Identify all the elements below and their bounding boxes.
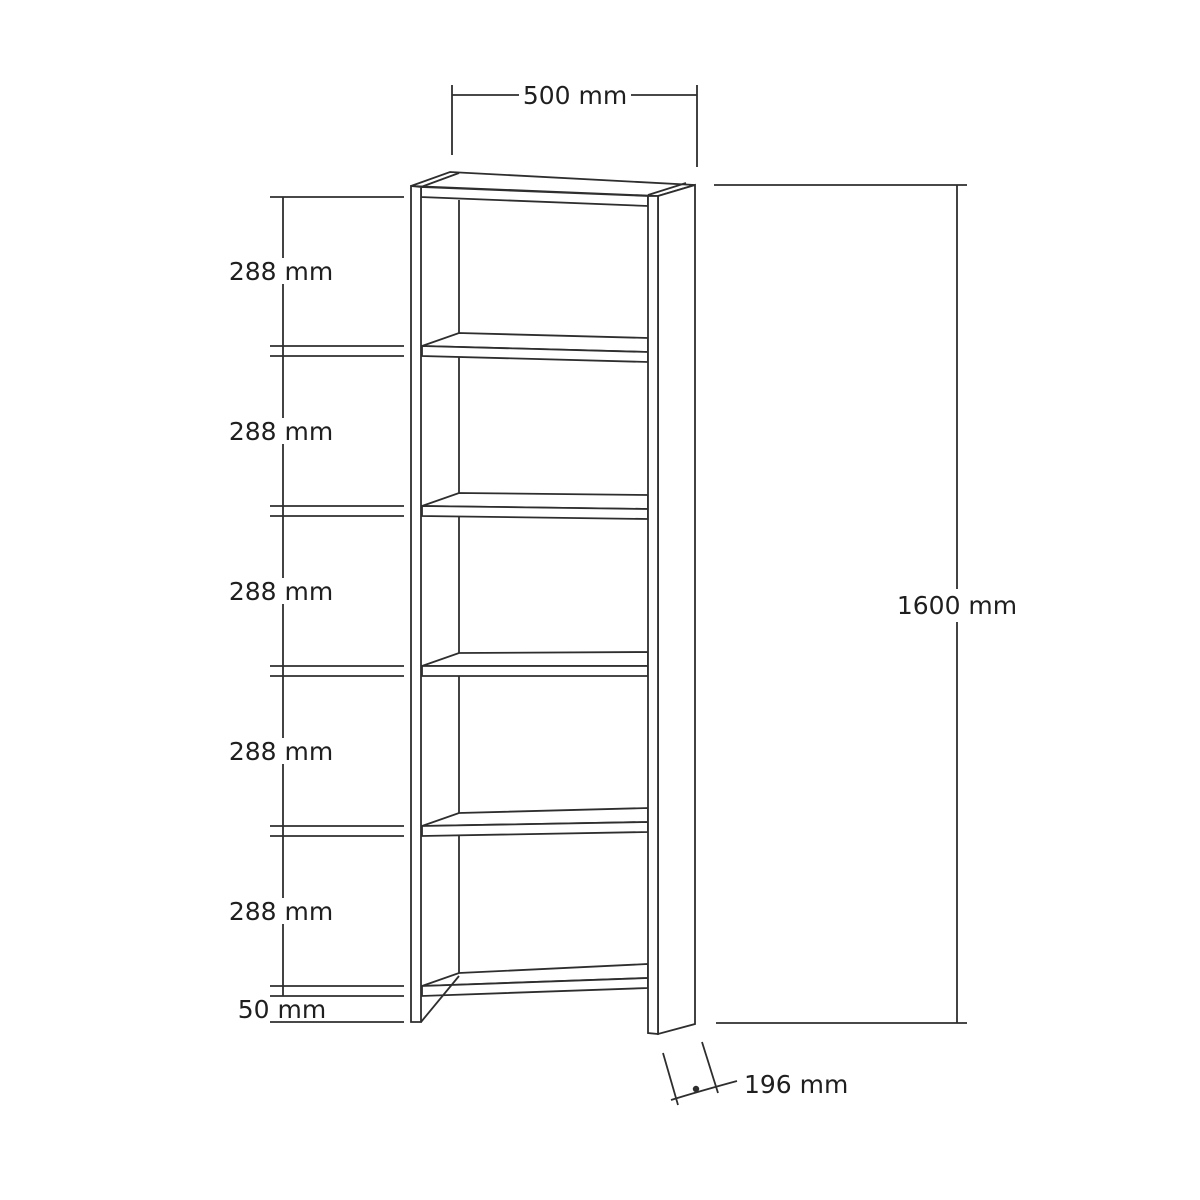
shelf-2-front-face (422, 506, 648, 519)
bookshelf-drawing (411, 172, 695, 1034)
bottom-clearance-label: 50 mm (238, 995, 326, 1024)
dimension-leader-line (671, 1081, 737, 1100)
width-dimension-label: 500 mm (523, 81, 627, 110)
dimension-dot-marker (693, 1086, 699, 1092)
extension-line (663, 1053, 678, 1105)
right-panel-outer-side-face (658, 185, 695, 1034)
dimension-left-chain: 288 mm 288 mm 288 mm 288 mm 288 mm 50 mm (229, 197, 404, 1024)
dimension-width: 500 mm (452, 81, 697, 167)
bookshelf-dimension-drawing: 500 mm 288 mm 288 mm 288 mm 288 mm 288 m… (0, 0, 1200, 1200)
shelf-spacing-label-2: 288 mm (229, 417, 333, 446)
shelf-spacing-label-4: 288 mm (229, 737, 333, 766)
extension-line (702, 1042, 718, 1093)
height-dimension-label: 1600 mm (897, 591, 1017, 620)
shelf-3-top-face (422, 652, 648, 666)
left-panel-front-face (411, 186, 421, 1022)
shelf-spacing-label-1: 288 mm (229, 257, 333, 286)
depth-dimension-label: 196 mm (744, 1070, 848, 1099)
shelf-3-front-face (422, 666, 648, 676)
shelf-spacing-label-5: 288 mm (229, 897, 333, 926)
drawing-canvas: 500 mm 288 mm 288 mm 288 mm 288 mm 288 m… (0, 0, 1200, 1200)
shelf-spacing-label-3: 288 mm (229, 577, 333, 606)
right-panel-front-face (648, 196, 658, 1034)
dimension-height: 1600 mm (714, 185, 1017, 1023)
dimension-depth: 196 mm (663, 1042, 848, 1105)
